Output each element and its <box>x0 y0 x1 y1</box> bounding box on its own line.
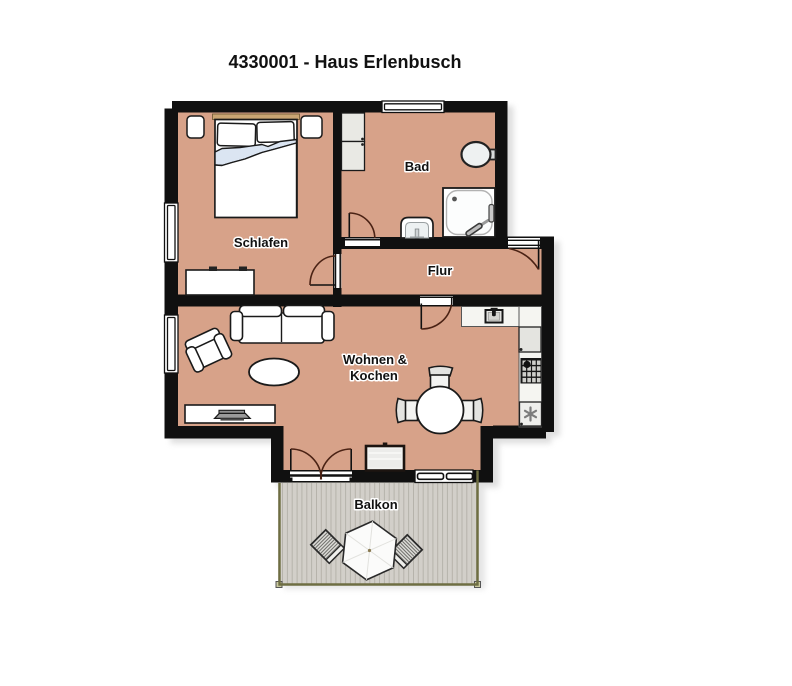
svg-text:Schlafen: Schlafen <box>234 235 288 250</box>
svg-text:Balkon: Balkon <box>354 497 397 512</box>
svg-text:Bad: Bad <box>405 159 430 174</box>
svg-text:Flur: Flur <box>428 263 453 278</box>
svg-text:Kochen: Kochen <box>350 368 398 383</box>
svg-text:Wohnen &: Wohnen & <box>343 352 407 367</box>
svg-text:4330001 - Haus Erlenbusch: 4330001 - Haus Erlenbusch <box>228 52 461 72</box>
